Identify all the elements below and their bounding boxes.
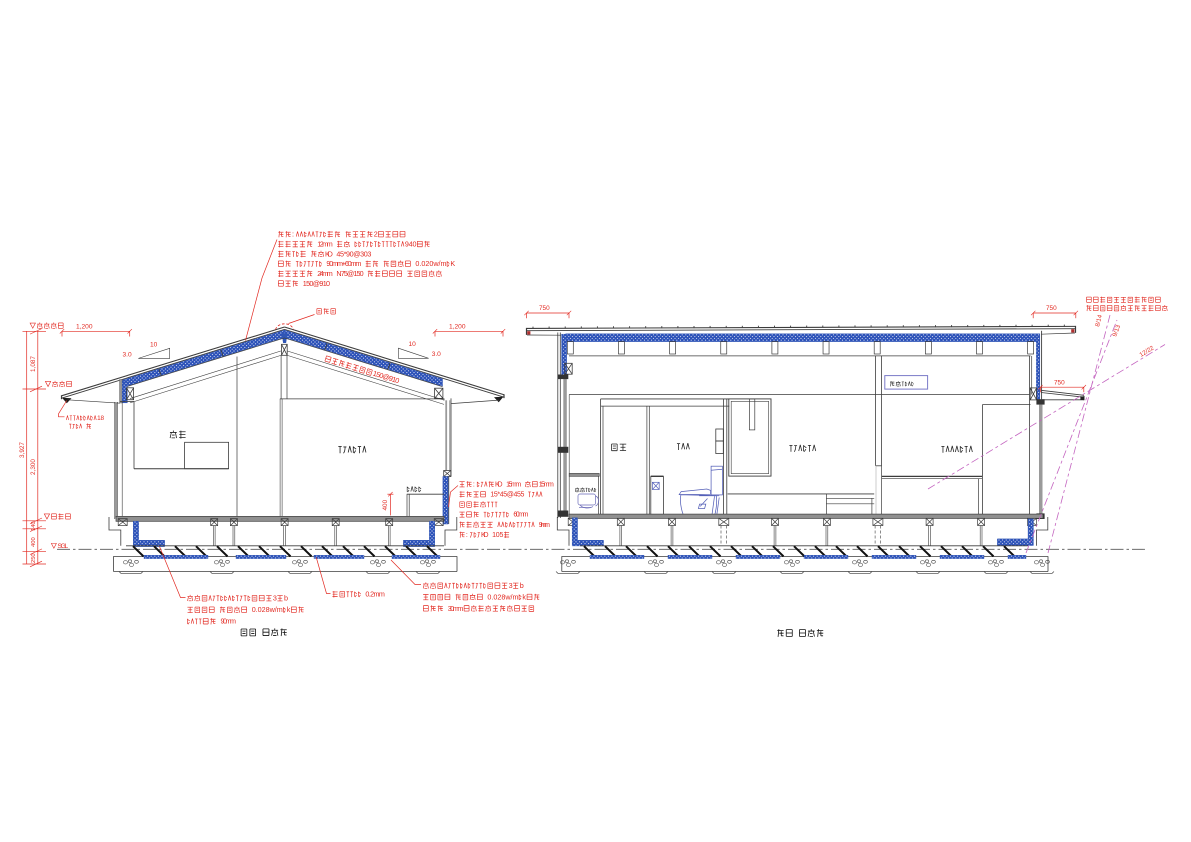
svg-text:SGL: SGL <box>58 543 69 550</box>
svg-text:10: 10 <box>150 341 158 348</box>
svg-text:b: b <box>284 594 288 603</box>
svg-text:0.028w/m: 0.028w/m <box>252 605 283 614</box>
svg-text:60mm: 60mm <box>513 512 528 519</box>
svg-text:0.020w/m: 0.020w/m <box>415 259 446 268</box>
svg-text:15mm: 15mm <box>506 481 521 488</box>
svg-text:750: 750 <box>539 305 550 312</box>
svg-text:N75@150: N75@150 <box>336 269 363 278</box>
svg-text:750: 750 <box>1046 305 1057 312</box>
svg-text:1,200: 1,200 <box>76 323 93 330</box>
svg-text:90mm+60mm: 90mm+60mm <box>326 259 361 268</box>
svg-text:0.028w/m: 0.028w/m <box>487 592 518 601</box>
svg-text::: : <box>466 532 468 539</box>
svg-text:105: 105 <box>492 532 503 539</box>
svg-text:940: 940 <box>405 239 417 248</box>
svg-text:3.0: 3.0 <box>123 351 132 358</box>
svg-text:140: 140 <box>31 521 37 531</box>
svg-text:400: 400 <box>31 537 37 547</box>
svg-text:2: 2 <box>374 230 378 239</box>
svg-text:45*90@303: 45*90@303 <box>336 249 371 258</box>
svg-text:30mm: 30mm <box>448 604 464 613</box>
svg-text:10: 10 <box>409 341 417 348</box>
svg-text::: : <box>473 481 475 488</box>
svg-text:3: 3 <box>273 594 277 603</box>
svg-text:90mm: 90mm <box>221 617 237 626</box>
svg-text:3: 3 <box>509 581 513 590</box>
svg-text:K: K <box>450 259 455 268</box>
svg-text:2,300: 2,300 <box>30 459 37 475</box>
svg-text:15mm: 15mm <box>539 481 554 488</box>
svg-text:1,087: 1,087 <box>30 356 37 372</box>
svg-text:750: 750 <box>1054 380 1065 387</box>
svg-text:3.0: 3.0 <box>432 351 441 358</box>
svg-text:0.2mm: 0.2mm <box>365 590 384 599</box>
svg-text:18: 18 <box>97 415 104 422</box>
svg-text:9mm: 9mm <box>539 522 550 529</box>
svg-text:150@910: 150@910 <box>303 279 330 288</box>
svg-text:3,927: 3,927 <box>19 442 26 458</box>
svg-text:1,200: 1,200 <box>449 323 466 330</box>
svg-text:k: k <box>287 605 291 614</box>
svg-text:400: 400 <box>382 499 389 510</box>
svg-text:12mm: 12mm <box>317 239 333 248</box>
svg-text:KD: KD <box>495 481 503 488</box>
svg-text:b: b <box>520 581 524 590</box>
svg-text::: : <box>292 230 294 239</box>
svg-text:15*45@455: 15*45@455 <box>490 492 524 499</box>
svg-text:24mm: 24mm <box>317 269 333 278</box>
svg-text:KD: KD <box>325 249 333 258</box>
svg-text:KD: KD <box>481 532 489 539</box>
svg-text:k: k <box>522 592 526 601</box>
svg-text:250: 250 <box>31 553 37 563</box>
